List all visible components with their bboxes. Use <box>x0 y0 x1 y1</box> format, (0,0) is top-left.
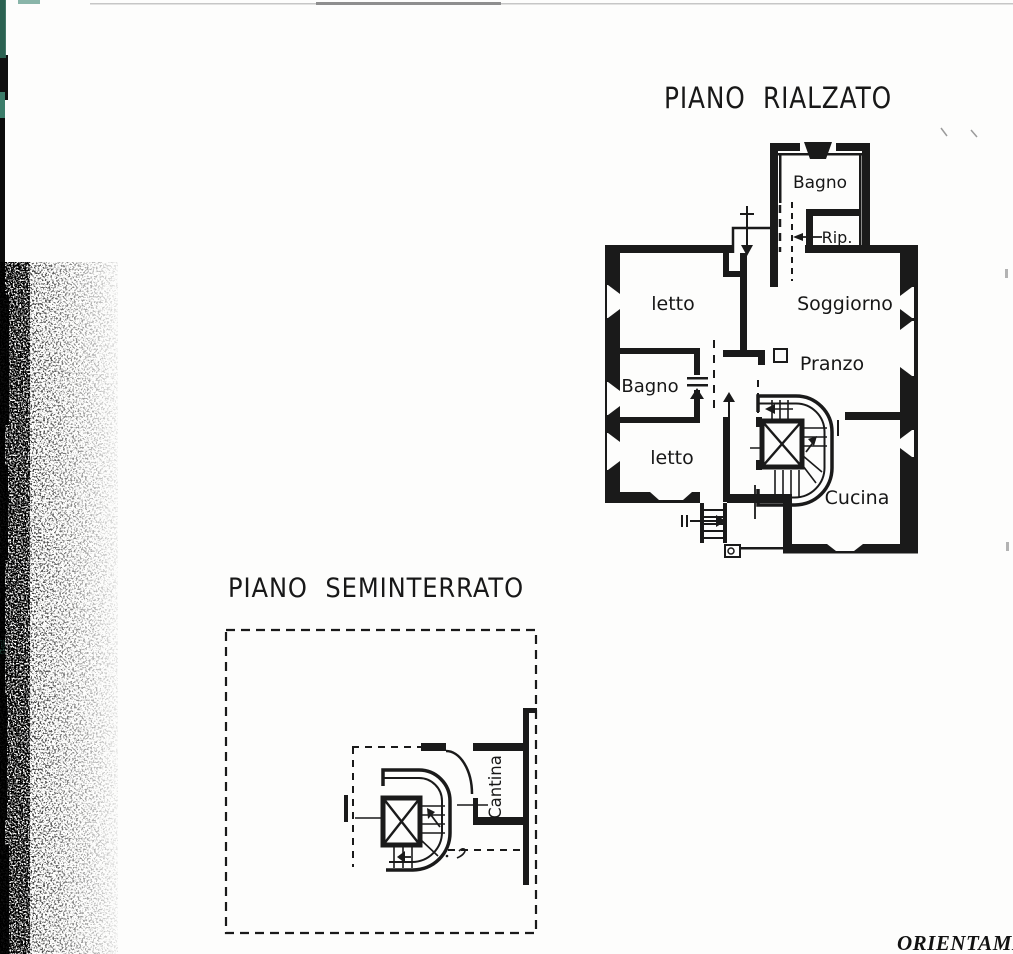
scan-margin-marks <box>941 128 977 137</box>
door-arrow-head <box>690 388 704 399</box>
door-jamb-square <box>774 349 787 362</box>
door-threshold-dash <box>687 384 708 387</box>
scanned-floorplan-page: PIANO RIALZATO <box>0 0 1013 954</box>
scan-speck-right-2 <box>1006 542 1009 551</box>
rialzato-staircase <box>750 396 832 505</box>
room-label-bagno: Bagno <box>621 376 678 397</box>
wall-inner-line <box>778 153 862 156</box>
wall-segment <box>473 798 478 819</box>
wall-segment <box>723 350 765 357</box>
shaft-nub <box>756 417 762 427</box>
rialzato-room-labels: Bagno Rip. letto Soggiorno Pranzo Bagno … <box>621 173 893 509</box>
wall-segment <box>845 412 914 420</box>
room-label-cantina: Cantina <box>486 755 505 819</box>
wall-segment <box>806 216 813 250</box>
wall-inner-line <box>859 153 862 245</box>
room-label-pranzo: Pranzo <box>800 353 864 375</box>
wall-segment <box>862 143 870 245</box>
wall-segment <box>421 743 446 751</box>
room-label-bagno-top: Bagno <box>793 173 847 193</box>
wall-segment <box>523 708 537 713</box>
entry-arrow-tick <box>686 515 688 527</box>
cantina-door-arc <box>446 751 472 794</box>
window-opening <box>899 321 914 376</box>
entry-recess-outline <box>733 228 772 253</box>
room-label-letto-1: letto <box>651 293 695 315</box>
entry-arrow-tick <box>681 515 683 527</box>
wall-segment <box>770 143 778 287</box>
wall-segment <box>740 253 747 352</box>
shaft-nub <box>756 460 762 470</box>
scan-noise-speckles <box>0 262 118 954</box>
wall-segment <box>806 209 860 216</box>
room-label-soggiorno: Soggiorno <box>797 293 893 315</box>
seminterrato-staircase <box>355 770 450 870</box>
wall-segment <box>723 271 741 277</box>
door-jamb-tick <box>837 420 839 436</box>
room-label-cucina: Cucina <box>825 487 890 509</box>
landing-line <box>740 547 783 550</box>
wall-segment <box>620 417 700 423</box>
wall-outer-line <box>605 500 700 503</box>
stair-up-arrow-head <box>765 404 775 414</box>
piano-rialzato-plan: PIANO RIALZATO <box>605 81 918 557</box>
orientation-caption-partial: ORIENTAMEN <box>897 931 1013 954</box>
wall-outer-line <box>783 551 918 554</box>
piano-seminterrato-title: PIANO SEMINTERRATO <box>228 573 524 604</box>
step-side-wall <box>723 503 727 543</box>
room-label-letto-2: letto <box>650 447 694 469</box>
wall-segment <box>694 348 700 375</box>
wall-segment <box>620 348 700 354</box>
wall-segment <box>605 245 733 253</box>
chimney-vent <box>804 142 832 159</box>
post-circle <box>728 548 734 554</box>
wall-segment <box>758 357 765 365</box>
piano-seminterrato-plan: PIANO SEMINTERRATO <box>226 573 537 933</box>
scan-top-line <box>90 3 1013 5</box>
rialzato-door-marks <box>714 340 758 519</box>
scan-speck-right-1 <box>1005 269 1008 278</box>
wall-segment <box>473 743 523 751</box>
wall-segment <box>523 710 529 885</box>
wall-segment <box>723 417 730 502</box>
step-side-wall <box>700 503 704 543</box>
wall-inner-line <box>779 153 782 203</box>
floorplan-drawing: PIANO RIALZATO <box>0 0 1013 954</box>
piano-rialzato-title: PIANO RIALZATO <box>664 81 892 115</box>
rialzato-entry-steps <box>681 503 740 557</box>
door-threshold-dash <box>687 377 708 380</box>
hall-arrow-head <box>723 392 735 402</box>
rip-arrow-head <box>793 233 803 241</box>
wall-segment <box>344 795 348 822</box>
stair-diag-arrow-shaft <box>431 815 440 827</box>
wall-outer-line <box>914 245 918 553</box>
room-label-rip: Rip. <box>822 228 853 247</box>
scan-top-line-dark <box>316 2 501 5</box>
